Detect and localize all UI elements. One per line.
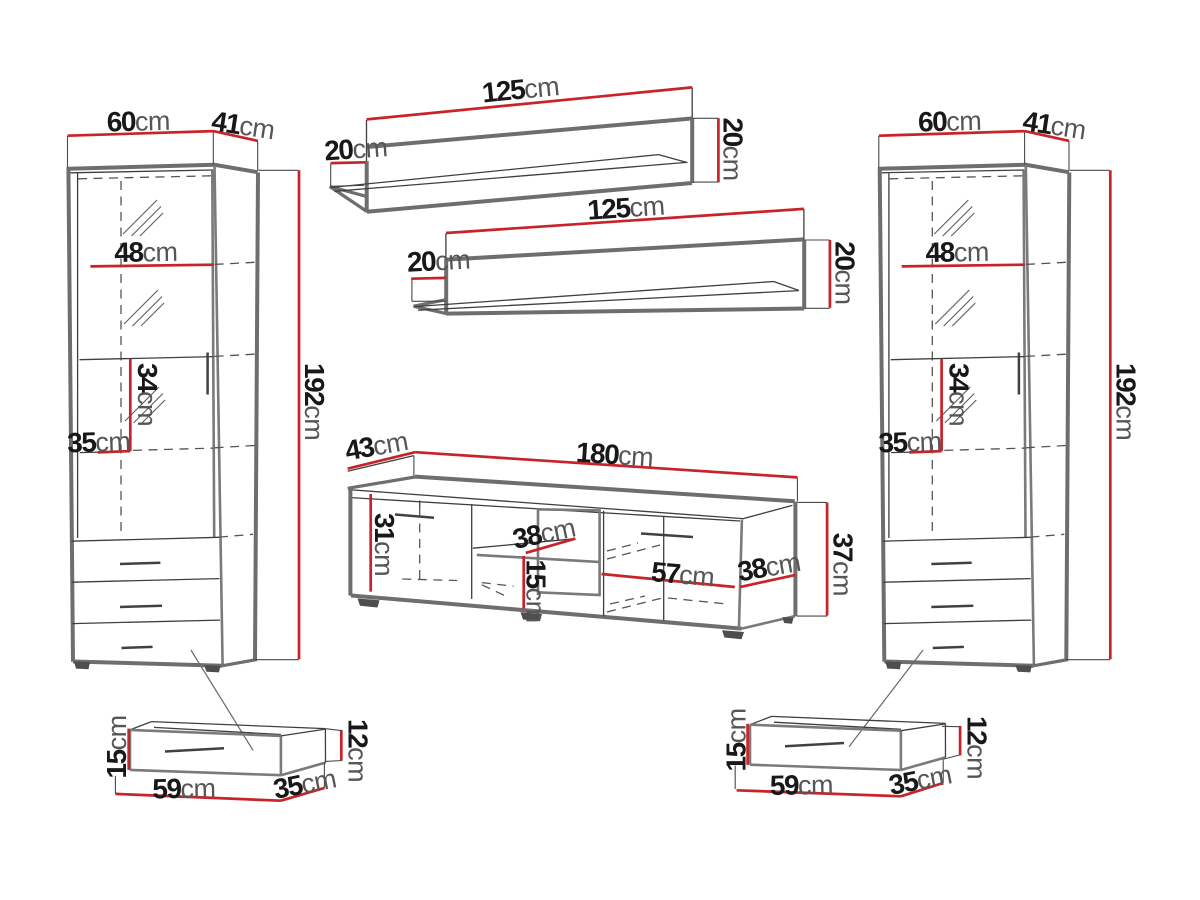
svg-text:20cm: 20cm — [406, 244, 471, 278]
svg-text:125cm: 125cm — [586, 190, 665, 226]
svg-text:59cm: 59cm — [152, 772, 216, 804]
svg-text:15cm: 15cm — [521, 560, 552, 623]
svg-text:20cm: 20cm — [323, 131, 388, 166]
svg-text:57cm: 57cm — [650, 556, 716, 592]
svg-text:59cm: 59cm — [770, 769, 834, 801]
svg-text:35cm: 35cm — [886, 758, 954, 800]
svg-text:38cm: 38cm — [735, 546, 803, 587]
svg-text:12cm: 12cm — [343, 719, 374, 782]
svg-text:20cm: 20cm — [830, 241, 861, 304]
svg-text:20cm: 20cm — [718, 118, 749, 181]
svg-text:37cm: 37cm — [828, 533, 859, 596]
svg-text:15cm: 15cm — [101, 715, 132, 778]
svg-text:38cm: 38cm — [510, 511, 578, 554]
svg-text:31cm: 31cm — [369, 513, 400, 576]
svg-text:12cm: 12cm — [962, 716, 993, 779]
svg-text:180cm: 180cm — [575, 437, 654, 473]
svg-text:15cm: 15cm — [721, 708, 752, 771]
svg-text:43cm: 43cm — [343, 425, 411, 466]
